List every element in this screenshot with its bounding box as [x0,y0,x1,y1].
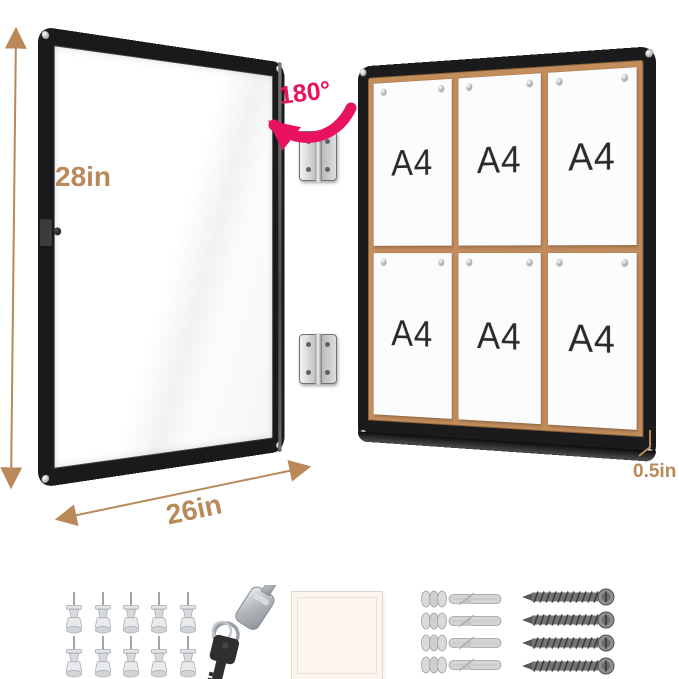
paper-label: A4 [391,313,433,356]
a4-paper: A4 [458,73,541,245]
keys-icon [192,585,294,679]
push-pin-icon [92,636,114,678]
height-label: 28in [55,161,111,193]
door-lock-cylinder-icon [54,227,61,235]
door-frame-edge [278,62,281,452]
paper-label: A4 [568,317,616,362]
push-pin-icon [438,258,444,265]
push-pin-icon [527,79,533,86]
glass-door [38,26,284,488]
screw-icon [520,588,616,606]
hinge-screws [306,139,311,144]
a4-paper: A4 [374,253,452,419]
push-pin-icon [556,78,562,85]
board-underside-edge [358,431,656,462]
paper-label: A4 [477,315,522,359]
wall-anchor-icon [419,656,507,674]
push-pin-icon [438,85,444,92]
hinge-icon [299,334,337,384]
push-pin-icon [148,592,170,634]
wall-anchor-icon [419,590,507,608]
wall-anchor-icon [419,634,507,652]
a4-paper: A4 [374,79,452,246]
hinge-icon [299,131,337,181]
push-pin-icon [381,258,387,264]
screw-icon [520,611,616,629]
screw-icon [520,634,616,652]
hinge-pin [315,130,322,182]
push-pin-icon [527,258,533,265]
door-corner-screw-icon [42,474,49,483]
push-pin-icon [63,636,85,678]
mounting-screws-set [520,588,618,679]
hinge-pin [315,333,322,385]
push-pin-icon [466,83,472,90]
push-pin-icon [63,592,85,634]
silver-key [233,585,289,632]
height-dimension-line [11,30,16,486]
wall-anchors-set [419,590,511,678]
paper-grid: A4 A4 A4 A4 A4 [368,60,643,437]
push-pin-icon [92,592,114,634]
product-diagram: A4 A4 A4 A4 A4 [0,0,679,679]
push-pin-icon [120,636,142,678]
black-key [203,634,240,679]
hinge-screws [306,342,311,347]
paper-label: A4 [477,138,522,182]
door-lock-latch [40,219,52,246]
push-pin-icon [148,636,170,678]
a4-paper: A4 [458,253,541,425]
wall-anchor-icon [419,612,507,630]
swing-angle-label: 180° [277,76,332,111]
backing-sheet-inner-border [297,597,377,674]
board-corner-screw-icon [360,69,366,77]
a4-paper: A4 [548,253,636,430]
push-pin-icon [466,258,472,265]
push-pin-icon [381,88,387,95]
door-corner-screw-icon [42,31,49,40]
push-pin-icon [120,592,142,634]
push-pin-icon [621,74,628,81]
board-corner-screw-icon [645,49,653,58]
paper-label: A4 [568,134,616,180]
push-pins-set [60,591,202,679]
backing-sheet [291,591,383,679]
width-label: 26in [163,489,224,532]
bulletin-board: A4 A4 A4 A4 A4 [358,46,656,462]
paper-label: A4 [391,142,433,185]
push-pin-icon [556,258,562,265]
a4-paper: A4 [548,67,636,245]
push-pin-icon [621,258,628,265]
screw-icon [520,657,616,675]
depth-label: 0.5in [633,461,676,483]
